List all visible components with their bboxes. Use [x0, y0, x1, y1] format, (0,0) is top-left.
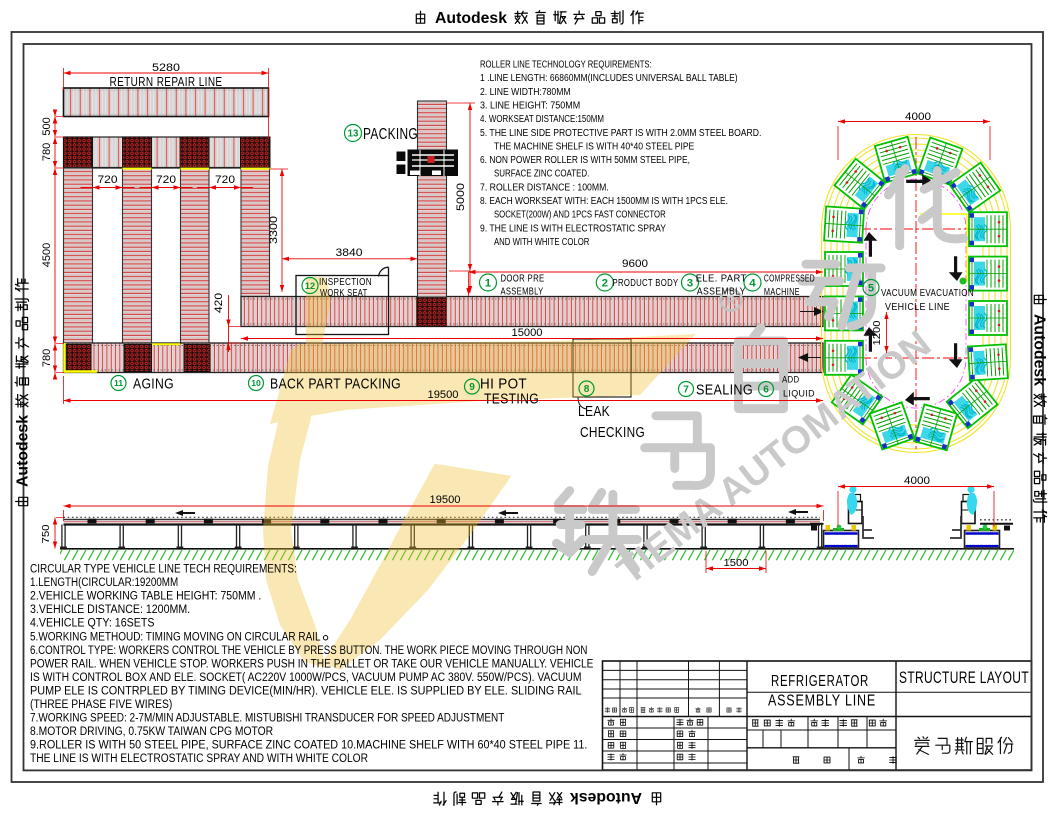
svg-text:Autodesk: Autodesk: [15, 415, 32, 487]
svg-text:4.VEHICLE QTY: 16SETS: 4.VEHICLE QTY: 16SETS: [30, 618, 155, 630]
svg-text:3.VEHICLE DISTANCE: 1200MM.: 3.VEHICLE DISTANCE: 1200MM.: [30, 604, 190, 616]
svg-text:3. LINE HEIGHT: 750MM: 3. LINE HEIGHT: 750MM: [480, 100, 580, 111]
svg-text:8. EACH WORKSEAT WITH: EACH 15: 8. EACH WORKSEAT WITH: EACH 1500MM IS WI…: [480, 196, 728, 207]
svg-text:DOOR PRE: DOOR PRE: [501, 274, 545, 285]
svg-text:SURFACE ZINC COATED.: SURFACE ZINC COATED.: [494, 169, 589, 180]
svg-text:STRUCTURE LAYOUT: STRUCTURE LAYOUT: [899, 669, 1029, 687]
svg-text:8: 8: [584, 384, 590, 395]
svg-text:SEALING: SEALING: [696, 382, 753, 399]
svg-text:ADD: ADD: [782, 375, 800, 386]
svg-text:MACHINE: MACHINE: [764, 287, 800, 298]
svg-text:WORK SEAT: WORK SEAT: [320, 288, 368, 299]
svg-text:19500: 19500: [430, 494, 461, 506]
svg-text:9. THE LINE IS WITH ELECTROSTA: 9. THE LINE IS WITH ELECTROSTATIC SPRAY: [480, 223, 666, 234]
svg-text:2: 2: [602, 278, 608, 290]
svg-text:1.LENGTH(CIRCULAR:19200MM: 1.LENGTH(CIRCULAR:19200MM: [30, 577, 178, 589]
svg-text:AGING: AGING: [133, 376, 174, 393]
svg-text:5280: 5280: [152, 62, 180, 74]
svg-text:6. NON POWER ROLLER IS WITH 50: 6. NON POWER ROLLER IS WITH 50MM STEEL P…: [480, 155, 690, 166]
svg-text:Autodesk: Autodesk: [570, 789, 642, 806]
svg-text:SOCKET(200W) AND 1PCS FAST CON: SOCKET(200W) AND 1PCS FAST CONNECTOR: [494, 210, 666, 221]
svg-text:3300: 3300: [268, 216, 280, 244]
svg-text:2.VEHICLE WORKING TABLE HEIGHT: 2.VEHICLE WORKING TABLE HEIGHT: 750MM .: [30, 591, 261, 603]
svg-text:INSPECTION: INSPECTION: [319, 277, 372, 288]
svg-text:1 .LINE LENGTH: 66860MM(INCLUD: 1 .LINE LENGTH: 66860MM(INCLUDES UNIVERS…: [480, 73, 738, 84]
svg-text:COMPRESSED: COMPRESSED: [764, 274, 815, 285]
svg-text:7. ROLLER DISTANCE : 100MM.: 7. ROLLER DISTANCE : 100MM.: [480, 182, 609, 193]
svg-text:ASSEMBLY LINE: ASSEMBLY LINE: [768, 693, 876, 710]
svg-text:4000: 4000: [904, 475, 930, 487]
svg-text:500: 500: [41, 117, 53, 135]
svg-text:15000: 15000: [512, 327, 543, 339]
svg-text:1200: 1200: [872, 320, 883, 345]
svg-text:ROLLER LINE TECHNOLOGY REQUIRE: ROLLER LINE TECHNOLOGY REQUIREMENTS:: [480, 60, 652, 71]
svg-text:LIQUID: LIQUID: [783, 389, 815, 400]
svg-text:Autodesk: Autodesk: [1031, 314, 1048, 386]
svg-text:750: 750: [41, 524, 52, 543]
svg-text:1500: 1500: [724, 558, 749, 569]
svg-text:THE LINE IS WITH ELECTROSTATIC: THE LINE IS WITH ELECTROSTATIC SPRAY AND…: [30, 753, 368, 765]
svg-text:720: 720: [98, 174, 118, 186]
svg-text:2. LINE WIDTH:780MM: 2. LINE WIDTH:780MM: [480, 87, 571, 98]
svg-text:720: 720: [156, 174, 176, 186]
svg-text:5.WORKING METHOUD: TIMING MOVI: 5.WORKING METHOUD: TIMING MOVING ON CIRC…: [30, 631, 321, 643]
svg-text:CIRCULAR TYPE VEHICLE LINE TEC: CIRCULAR TYPE VEHICLE LINE TECH REQUIREM…: [30, 564, 297, 576]
svg-text:11: 11: [114, 378, 123, 388]
svg-text:10: 10: [251, 378, 261, 388]
svg-text:9: 9: [469, 382, 475, 393]
svg-text:4000: 4000: [905, 111, 931, 123]
svg-text:5. THE LINE SIDE PROTECTIVE PA: 5. THE LINE SIDE PROTECTIVE PART IS WITH…: [480, 128, 761, 139]
svg-text:RETURN REPAIR LINE: RETURN REPAIR LINE: [110, 74, 223, 89]
svg-text:CHECKING: CHECKING: [580, 424, 645, 441]
svg-text:7: 7: [683, 385, 689, 396]
svg-text:VACUUM EVACUATION: VACUUM EVACUATION: [881, 288, 974, 299]
svg-text:3: 3: [687, 278, 693, 290]
svg-text:5000: 5000: [455, 183, 467, 211]
svg-text:4: 4: [749, 278, 756, 290]
svg-text:IS WITH CONTROL BOX AND ELE. S: IS WITH CONTROL BOX AND ELE. SOCKET( AC2…: [30, 672, 582, 684]
svg-text:9600: 9600: [622, 258, 648, 270]
svg-text:9.ROLLER IS WITH 50 STEEL PIPE: 9.ROLLER IS WITH 50 STEEL PIPE, SURFACE …: [30, 740, 587, 752]
svg-text:ASSEMBLY: ASSEMBLY: [697, 286, 746, 297]
svg-text:THE MACHINE SHELF IS WITH 40*4: THE MACHINE SHELF IS WITH 40*40 STEEL PI…: [494, 141, 695, 152]
svg-text:PACKING: PACKING: [363, 126, 418, 143]
svg-text:19500: 19500: [428, 389, 459, 401]
svg-text:5: 5: [868, 282, 874, 294]
svg-text:LEAK: LEAK: [578, 403, 610, 420]
svg-text:REFRIGERATOR: REFRIGERATOR: [771, 673, 869, 690]
svg-text:3840: 3840: [336, 247, 363, 259]
svg-text:780: 780: [41, 349, 53, 367]
svg-text:780: 780: [41, 143, 53, 161]
svg-text:720: 720: [215, 174, 235, 186]
svg-text:ASSEMBLY: ASSEMBLY: [501, 287, 544, 298]
svg-text:420: 420: [213, 293, 225, 313]
svg-text:8.MOTOR DRIVING, 0.75KW TAIWA: 8.MOTOR DRIVING, 0.75KW TAIWAN CPG MOTOR: [30, 726, 273, 738]
svg-text:TESTING: TESTING: [484, 391, 539, 408]
svg-text:4. WORKSEAT DISTANCE:150MM: 4. WORKSEAT DISTANCE:150MM: [480, 114, 604, 125]
svg-text:BACK PART PACKING: BACK PART PACKING: [270, 376, 401, 393]
svg-text:PRODUCT BODY: PRODUCT BODY: [613, 278, 679, 289]
svg-text:7.WORKING SPEED: 2-7M/MIN ADJU: 7.WORKING SPEED: 2-7M/MIN ADJUSTABLE. MI…: [30, 713, 504, 725]
svg-text:(THREE PHASE FIVE WIRES): (THREE PHASE FIVE WIRES): [30, 699, 172, 711]
svg-text:POWER RAIL. WHEN VEHICLE STOP.: POWER RAIL. WHEN VEHICLE STOP. WORKERS P…: [30, 658, 594, 670]
svg-text:PUMP ELE IS CONTRPLED BY TIMIN: PUMP ELE IS CONTRPLED BY TIMING DEVICE(M…: [30, 685, 582, 697]
svg-text:VEHICLE LINE: VEHICLE LINE: [885, 302, 950, 313]
svg-text:13: 13: [348, 129, 359, 140]
svg-text:4500: 4500: [41, 243, 53, 267]
svg-text:6: 6: [763, 385, 769, 396]
svg-text:ELE. PART: ELE. PART: [696, 274, 747, 285]
svg-text:12: 12: [305, 281, 315, 291]
svg-text:1: 1: [485, 278, 492, 290]
svg-text:AND WITH WHITE COLOR: AND WITH WHITE COLOR: [494, 237, 589, 248]
svg-text:Autodesk: Autodesk: [435, 10, 507, 27]
svg-text:6.CONTROL TYPE: WORKERS CONTRO: 6.CONTROL TYPE: WORKERS CONTROL THE VEHI…: [30, 645, 587, 657]
